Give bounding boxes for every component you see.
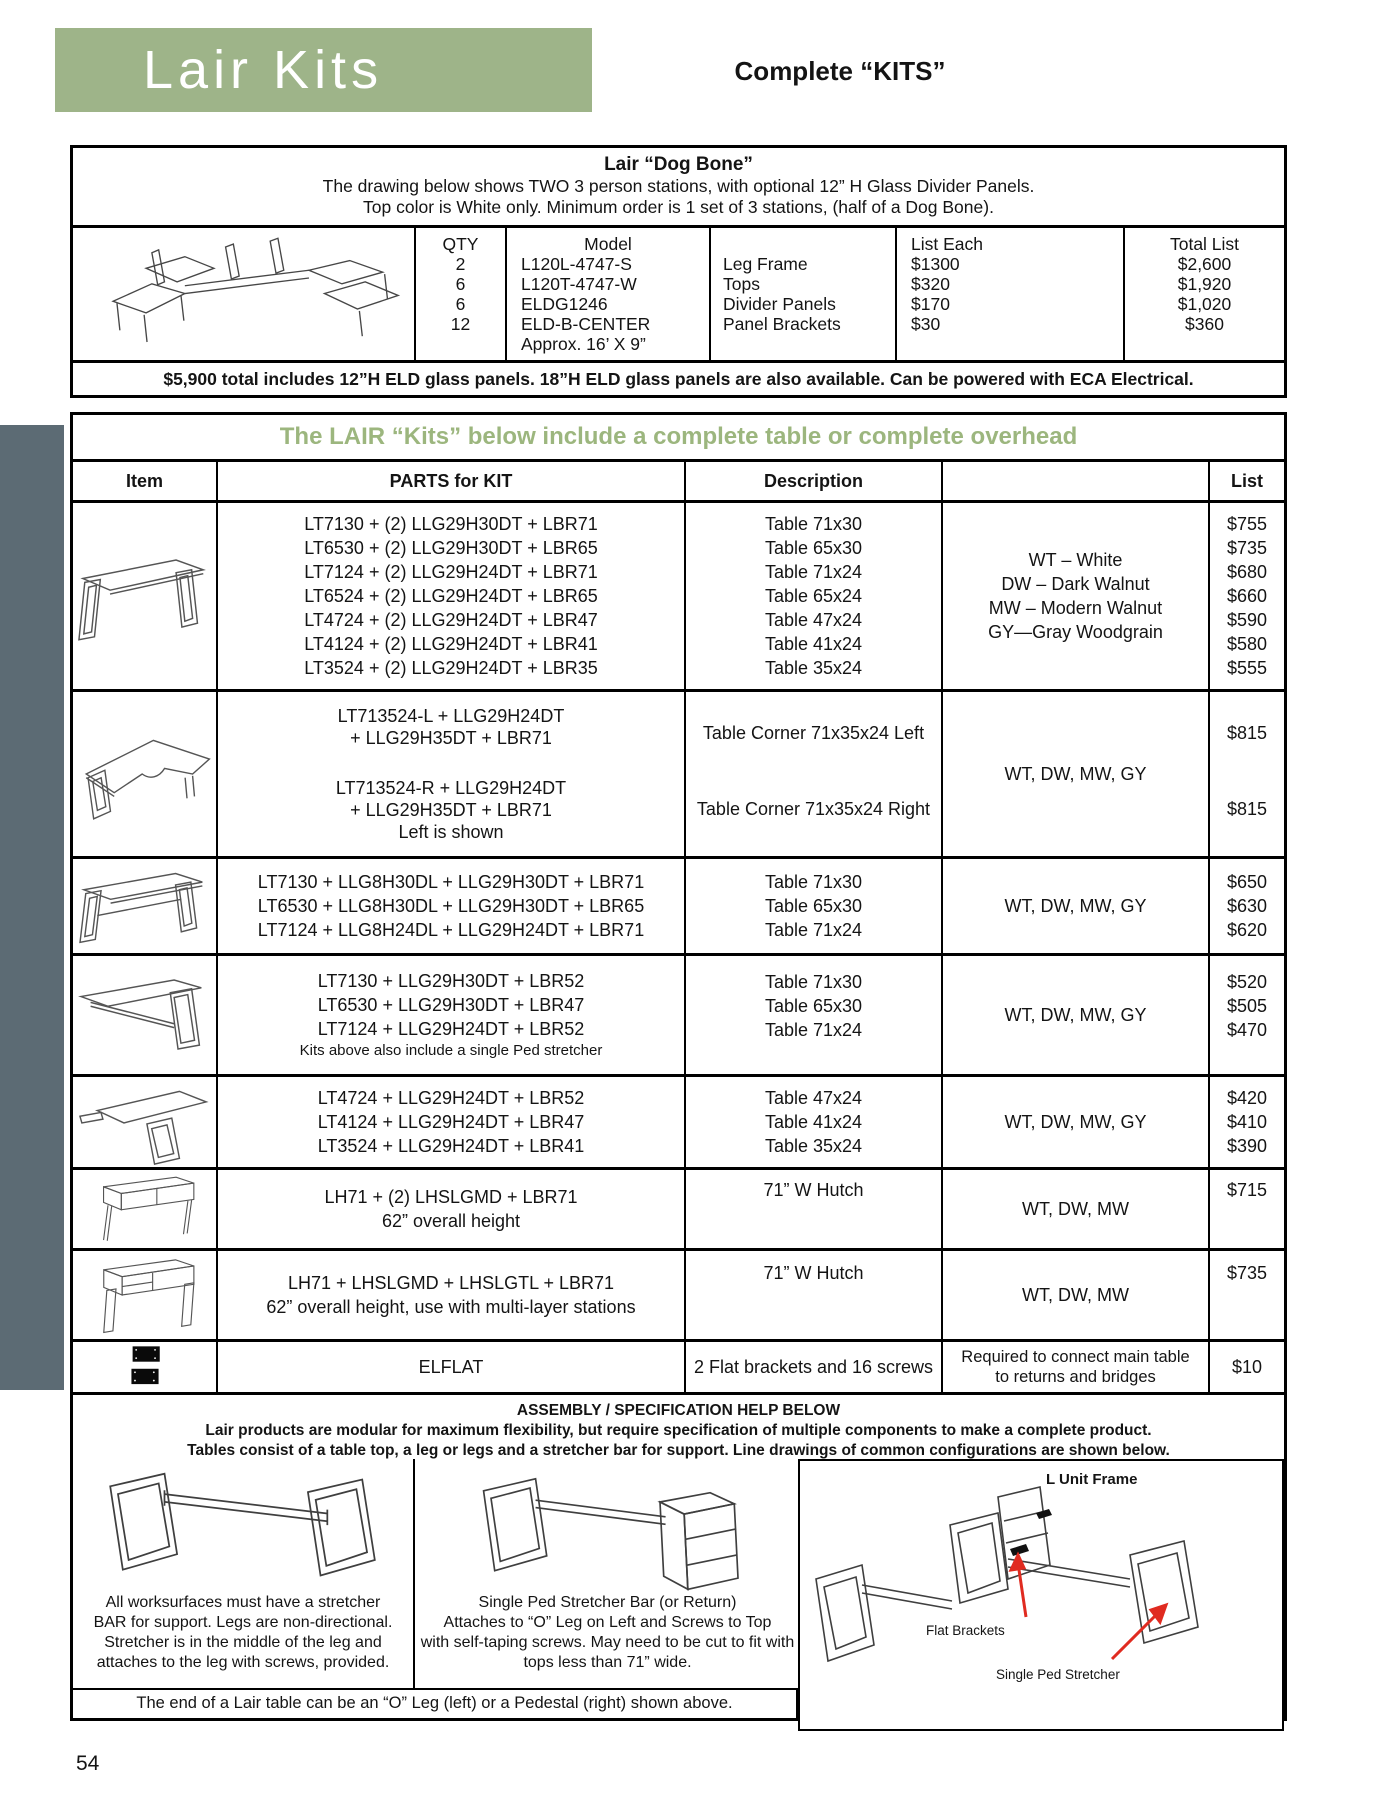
item-cell [73, 1077, 218, 1167]
color-option: WT – White [1029, 548, 1123, 572]
price: $630 [1227, 894, 1267, 918]
part-line: LT4124 + LLG29H24DT + LBR47 [318, 1110, 585, 1134]
part-line: LT713524-R + LLG29H24DT [336, 777, 566, 799]
page-subtitle: Complete “KITS” [690, 56, 990, 87]
model-value: ELDG1246 [521, 294, 709, 314]
price: $505 [1227, 994, 1267, 1018]
color-option: WT, DW, MW, GY [1005, 762, 1147, 786]
color-option: WT, DW, MW [1022, 1283, 1129, 1307]
part-line: LT7124 + (2) LLG29H24DT + LBR71 [304, 560, 598, 584]
multi-layer-hutch-drawing [77, 1253, 213, 1337]
desc-line: Table 71x24 [765, 1018, 862, 1042]
colors-cell: WT, DW, MW, GY [943, 1077, 1210, 1167]
stretcher-bar-help: All worksurfaces must have a stretcher B… [73, 1459, 415, 1688]
desc-line: Table 35x24 [765, 1134, 862, 1158]
desc-line: Table 47x24 [765, 1086, 862, 1110]
stretcher-bar-note: All worksurfaces must have a stretcher B… [73, 1593, 413, 1673]
total-value: $1,920 [1125, 274, 1284, 294]
flat-brackets-image [110, 1344, 180, 1390]
hutch-drawing [77, 1172, 213, 1246]
color-option: GY—Gray Woodgrain [988, 620, 1163, 644]
part-line: LH71 + (2) LHSLGMD + LBR71 [324, 1185, 577, 1209]
part-line: LT7124 + LLG29H24DT + LBR52 [318, 1017, 585, 1041]
total-value: $360 [1125, 314, 1284, 334]
table-row: LH71 + LHSLGMD + LHSLGTL + LBR71 62” ove… [73, 1251, 1284, 1342]
parts-cell: LT7130 + LLG29H30DT + LBR52 LT6530 + LLG… [218, 956, 686, 1074]
dog-bone-intro-line-1: The drawing below shows TWO 3 person sta… [73, 176, 1284, 197]
part-line: LT4124 + (2) LLG29H24DT + LBR41 [304, 632, 598, 656]
dog-bone-cluster-drawing [84, 233, 404, 355]
desc-line: Table 71x24 [765, 560, 862, 584]
kits-table-title: The LAIR “Kits” below include a complete… [73, 415, 1284, 462]
colors-cell: WT, DW, MW, GY [943, 956, 1210, 1074]
bottom-footer-note: The end of a Lair table can be an “O” Le… [73, 1688, 798, 1718]
price: $680 [1227, 560, 1267, 584]
list-price-cell: $735 [1210, 1251, 1284, 1339]
list-price-cell: $10 [1210, 1342, 1284, 1392]
price: $755 [1227, 512, 1267, 536]
header-description: Description [686, 462, 943, 500]
left-accent-bar [0, 425, 64, 1390]
parts-cell: LT713524-L + LLG29H24DT + LLG29H35DT + L… [218, 692, 686, 856]
price: $815 [1227, 722, 1267, 744]
part-line: LT6530 + LLG8H30DL + LLG29H30DT + LBR65 [258, 894, 644, 918]
table-row: LT7130 + LLG8H30DL + LLG29H30DT + LBR71 … [73, 859, 1284, 956]
dog-bone-total-column: Total List $2,600 $1,920 $1,020 $360 [1125, 228, 1284, 360]
price: $735 [1227, 536, 1267, 560]
colors-note: Required to connect main table [961, 1347, 1189, 1367]
desc-value: Divider Panels [723, 294, 895, 314]
part-line: LT6530 + (2) LLG29H30DT + LBR65 [304, 536, 598, 560]
parts-cell: LT4724 + LLG29H24DT + LBR52 LT4124 + LLG… [218, 1077, 686, 1167]
flat-brackets-label: Flat Brackets [926, 1623, 1005, 1638]
l-unit-frame-drawing [800, 1461, 1282, 1729]
color-option: WT, DW, MW, GY [1005, 1003, 1147, 1027]
two-oleg-table-drawing [77, 546, 213, 646]
dog-bone-drawing-cell [73, 228, 416, 360]
color-option: WT, DW, MW, GY [1005, 1110, 1147, 1134]
desc-line: Table 65x30 [765, 994, 862, 1018]
list-each-value: $30 [911, 314, 1123, 334]
model-header: Model [521, 234, 709, 254]
dog-bone-title: Lair “Dog Bone” [73, 153, 1284, 176]
color-option: WT, DW, MW [1022, 1197, 1129, 1221]
desc-line: Table 41x24 [765, 1110, 862, 1134]
single-ped-note-line: Single Ped Stretcher Bar (or Return) [479, 1593, 737, 1613]
list-price-cell: $650 $630 $620 [1210, 859, 1284, 953]
page-banner: Lair Kits [55, 28, 592, 112]
item-cell [73, 503, 218, 689]
part-line: LT7130 + LLG8H30DL + LLG29H30DT + LBR71 [258, 870, 644, 894]
kits-table: The LAIR “Kits” below include a complete… [70, 412, 1287, 1395]
price: $520 [1227, 970, 1267, 994]
parts-note: Left is shown [398, 821, 503, 843]
description-cell: Table 71x30 Table 65x30 Table 71x24 [686, 956, 943, 1074]
part-line: LH71 + LHSLGMD + LHSLGTL + LBR71 [288, 1271, 614, 1295]
parts-note: Kits above also include a single Ped str… [300, 1041, 603, 1061]
description-cell: 2 Flat brackets and 16 screws [686, 1342, 943, 1392]
part-line: LT7124 + LLG8H24DL + LLG29H24DT + LBR71 [258, 918, 644, 942]
corner-table-drawing [75, 716, 215, 832]
qty-value: 12 [416, 314, 505, 334]
price: $590 [1227, 608, 1267, 632]
price: $620 [1227, 918, 1267, 942]
price: $580 [1227, 632, 1267, 656]
table-row: ELFLAT 2 Flat brackets and 16 screws Req… [73, 1342, 1284, 1392]
table-row: LT713524-L + LLG29H24DT + LLG29H35DT + L… [73, 692, 1284, 859]
part-line: + LLG29H35DT + LBR71 [350, 799, 552, 821]
l-unit-frame-label: L Unit Frame [1046, 1471, 1137, 1488]
desc-line: Table Corner 71x35x24 Left [703, 722, 924, 744]
price: $420 [1227, 1086, 1267, 1110]
part-line: LT713524-L + LLG29H24DT [338, 705, 565, 727]
part-line: LT6524 + (2) LLG29H24DT + LBR65 [304, 584, 598, 608]
colors-note: to returns and bridges [995, 1367, 1156, 1387]
parts-cell: LT7130 + (2) LLG29H30DT + LBR71 LT6530 +… [218, 503, 686, 689]
angled-return-table-drawing [77, 1078, 213, 1166]
item-cell [73, 1170, 218, 1248]
table-row: LH71 + (2) LHSLGMD + LBR71 62” overall h… [73, 1170, 1284, 1251]
list-each-header: List Each [911, 234, 1123, 254]
list-price-cell: $715 [1210, 1170, 1284, 1248]
price: $470 [1227, 1018, 1267, 1042]
dog-bone-price-note: $5,900 total includes 12”H ELD glass pan… [73, 363, 1284, 395]
desc-line: Table 71x30 [765, 870, 862, 894]
qty-header: QTY [416, 234, 505, 254]
desc-line: Table 47x24 [765, 608, 862, 632]
list-price-cell: $755 $735 $680 $660 $590 $580 $555 [1210, 503, 1284, 689]
desc-line: Table 71x24 [765, 918, 862, 942]
desc-line: Table 65x30 [765, 894, 862, 918]
single-ped-note-line: tops less than 71” wide. [523, 1653, 691, 1673]
desc-value: Leg Frame [723, 254, 895, 274]
part-line: LT4724 + (2) LLG29H24DT + LBR47 [304, 608, 598, 632]
part-line: LT4724 + LLG29H24DT + LBR52 [318, 1086, 585, 1110]
colors-cell: Required to connect main table to return… [943, 1342, 1210, 1392]
item-cell [73, 1342, 218, 1392]
single-ped-stretcher-label: Single Ped Stretcher [996, 1667, 1120, 1682]
desc-line: 71” W Hutch [763, 1178, 863, 1202]
part-line: LT3524 + LLG29H24DT + LBR41 [318, 1134, 585, 1158]
table-row: LT7130 + LLG29H30DT + LBR52 LT6530 + LLG… [73, 956, 1284, 1077]
price: $815 [1227, 798, 1267, 820]
table-row: LT7130 + (2) LLG29H30DT + LBR71 LT6530 +… [73, 503, 1284, 692]
part-line: LT7130 + LLG29H30DT + LBR52 [318, 969, 585, 993]
colors-cell: WT, DW, MW [943, 1170, 1210, 1248]
price: $650 [1227, 870, 1267, 894]
desc-line: 2 Flat brackets and 16 screws [694, 1355, 933, 1379]
list-price-cell: $520 $505 $470 [1210, 956, 1284, 1074]
qty-value: 6 [416, 274, 505, 294]
description-cell: Table 71x30 Table 65x30 Table 71x24 [686, 859, 943, 953]
price: $715 [1227, 1178, 1267, 1202]
desc-line: Table 71x30 [765, 970, 862, 994]
single-ped-note-line: with self-taping screws. May need to be … [421, 1633, 795, 1653]
part-line: + LLG29H35DT + LBR71 [350, 727, 552, 749]
color-option: DW – Dark Walnut [1001, 572, 1149, 596]
header-item: Item [73, 462, 218, 500]
page-title: Lair Kits [55, 39, 383, 101]
part-line: LT3524 + (2) LLG29H24DT + LBR35 [304, 656, 598, 680]
parts-cell: LH71 + (2) LHSLGMD + LBR71 62” overall h… [218, 1170, 686, 1248]
header-list: List [1210, 462, 1284, 500]
list-each-value: $170 [911, 294, 1123, 314]
item-cell [73, 956, 218, 1074]
list-price-cell: $420 $410 $390 [1210, 1077, 1284, 1167]
qty-value: 6 [416, 294, 505, 314]
approx-size: Approx. 16’ X 9” [521, 334, 709, 354]
desc-line: Table 65x30 [765, 536, 862, 560]
description-cell: 71” W Hutch [686, 1251, 943, 1339]
description-cell: Table 71x30 Table 65x30 Table 71x24 Tabl… [686, 503, 943, 689]
dog-bone-list-each-column: List Each $1300 $320 $170 $30 [897, 228, 1125, 360]
dog-bone-section: Lair “Dog Bone” The drawing below shows … [70, 145, 1287, 398]
colors-cell: WT, DW, MW [943, 1251, 1210, 1339]
part-line: LT6530 + LLG29H30DT + LBR47 [318, 993, 585, 1017]
assembly-title: ASSEMBLY / SPECIFICATION HELP BELOW [73, 1400, 1284, 1421]
table-with-stretcher-drawing [77, 863, 213, 949]
color-option: MW – Modern Walnut [989, 596, 1162, 620]
dog-bone-model-column: Model L120L-4747-S L120T-4747-W ELDG1246… [507, 228, 711, 360]
model-value: L120T-4747-W [521, 274, 709, 294]
desc-line: Table 41x24 [765, 632, 862, 656]
single-oleg-table-drawing [77, 967, 213, 1063]
part-line: ELFLAT [419, 1355, 484, 1379]
dog-bone-qty-column: QTY 2 6 6 12 [416, 228, 507, 360]
header-colors [943, 462, 1210, 500]
dog-bone-table: QTY 2 6 6 12 Model L120L-4747-S L120T-47… [73, 228, 1284, 363]
parts-cell: LH71 + LHSLGMD + LHSLGTL + LBR71 62” ove… [218, 1251, 686, 1339]
total-list-header: Total List [1125, 234, 1284, 254]
dog-bone-intro: Lair “Dog Bone” The drawing below shows … [73, 148, 1284, 228]
item-cell [73, 692, 218, 856]
colors-cell: WT, DW, MW, GY [943, 859, 1210, 953]
kits-table-header: Item PARTS for KIT Description List [73, 462, 1284, 503]
part-line: LT7130 + (2) LLG29H30DT + LBR71 [304, 512, 598, 536]
price: $10 [1232, 1355, 1262, 1379]
desc-line: Table 71x30 [765, 512, 862, 536]
list-each-value: $320 [911, 274, 1123, 294]
qty-value: 2 [416, 254, 505, 274]
item-cell [73, 859, 218, 953]
total-value: $1,020 [1125, 294, 1284, 314]
description-cell: Table 47x24 Table 41x24 Table 35x24 [686, 1077, 943, 1167]
single-ped-note-line: Attaches to “O” Leg on Left and Screws t… [444, 1613, 772, 1633]
price: $735 [1227, 1261, 1267, 1285]
price: $660 [1227, 584, 1267, 608]
color-option: WT, DW, MW, GY [1005, 894, 1147, 918]
catalog-page: Lair Kits Complete “KITS” Lair “Dog Bone… [0, 0, 1391, 1800]
table-row: LT4724 + LLG29H24DT + LBR52 LT4124 + LLG… [73, 1077, 1284, 1170]
desc-value: Tops [723, 274, 895, 294]
desc-line: 71” W Hutch [763, 1261, 863, 1285]
part-line: 62” overall height, use with multi-layer… [266, 1295, 635, 1319]
assembly-line-1: Lair products are modular for maximum fl… [73, 1421, 1284, 1441]
price: $410 [1227, 1110, 1267, 1134]
price: $390 [1227, 1134, 1267, 1158]
item-cell [73, 1251, 218, 1339]
desc-line: Table Corner 71x35x24 Right [697, 798, 930, 820]
single-ped-help: Single Ped Stretcher Bar (or Return) Att… [417, 1459, 798, 1688]
colors-cell: WT – White DW – Dark Walnut MW – Modern … [943, 503, 1210, 689]
colors-cell: WT, DW, MW, GY [943, 692, 1210, 856]
desc-value: Panel Brackets [723, 314, 895, 334]
price: $555 [1227, 656, 1267, 680]
list-each-value: $1300 [911, 254, 1123, 274]
desc-line: Table 35x24 [765, 656, 862, 680]
desc-line: Table 65x24 [765, 584, 862, 608]
oleg-frames-stretcher-drawing [83, 1465, 403, 1591]
model-value: L120L-4747-S [521, 254, 709, 274]
total-value: $2,600 [1125, 254, 1284, 274]
page-number: 54 [76, 1752, 99, 1776]
l-unit-frame-box: L Unit Frame Flat Brackets Single Ped St… [798, 1459, 1284, 1731]
spacer [723, 234, 895, 254]
dog-bone-desc-column: Leg Frame Tops Divider Panels Panel Brac… [711, 228, 897, 360]
single-ped-stretcher-drawing [443, 1463, 773, 1593]
description-cell: Table Corner 71x35x24 Left Table Corner … [686, 692, 943, 856]
model-value: ELD-B-CENTER [521, 314, 709, 334]
bottom-help-section: All worksurfaces must have a stretcher B… [70, 1459, 1287, 1721]
header-parts: PARTS for KIT [218, 462, 686, 500]
assembly-line-2: Tables consist of a table top, a leg or … [73, 1441, 1284, 1461]
parts-cell: ELFLAT [218, 1342, 686, 1392]
parts-cell: LT7130 + LLG8H30DL + LLG29H30DT + LBR71 … [218, 859, 686, 953]
part-line: 62” overall height [382, 1209, 520, 1233]
list-price-cell: $815 $815 [1210, 692, 1284, 856]
dog-bone-intro-line-2: Top color is White only. Minimum order i… [73, 197, 1284, 218]
description-cell: 71” W Hutch [686, 1170, 943, 1248]
